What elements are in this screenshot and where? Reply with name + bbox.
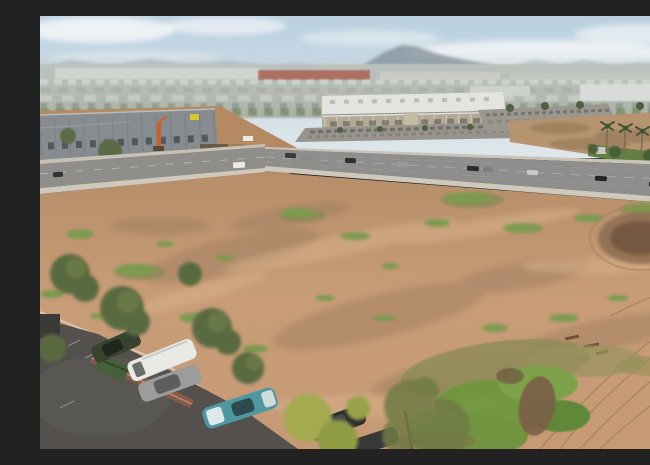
aerial-photo (40, 16, 650, 449)
big-box-store-right (580, 84, 650, 101)
yellow-sign (190, 114, 199, 120)
aerial-photo-canvas (40, 16, 650, 449)
work-truck (243, 136, 253, 141)
distant-warehouses-left (55, 68, 260, 79)
retail-entry-feature (404, 112, 418, 125)
red-roof-building-row (258, 70, 370, 80)
